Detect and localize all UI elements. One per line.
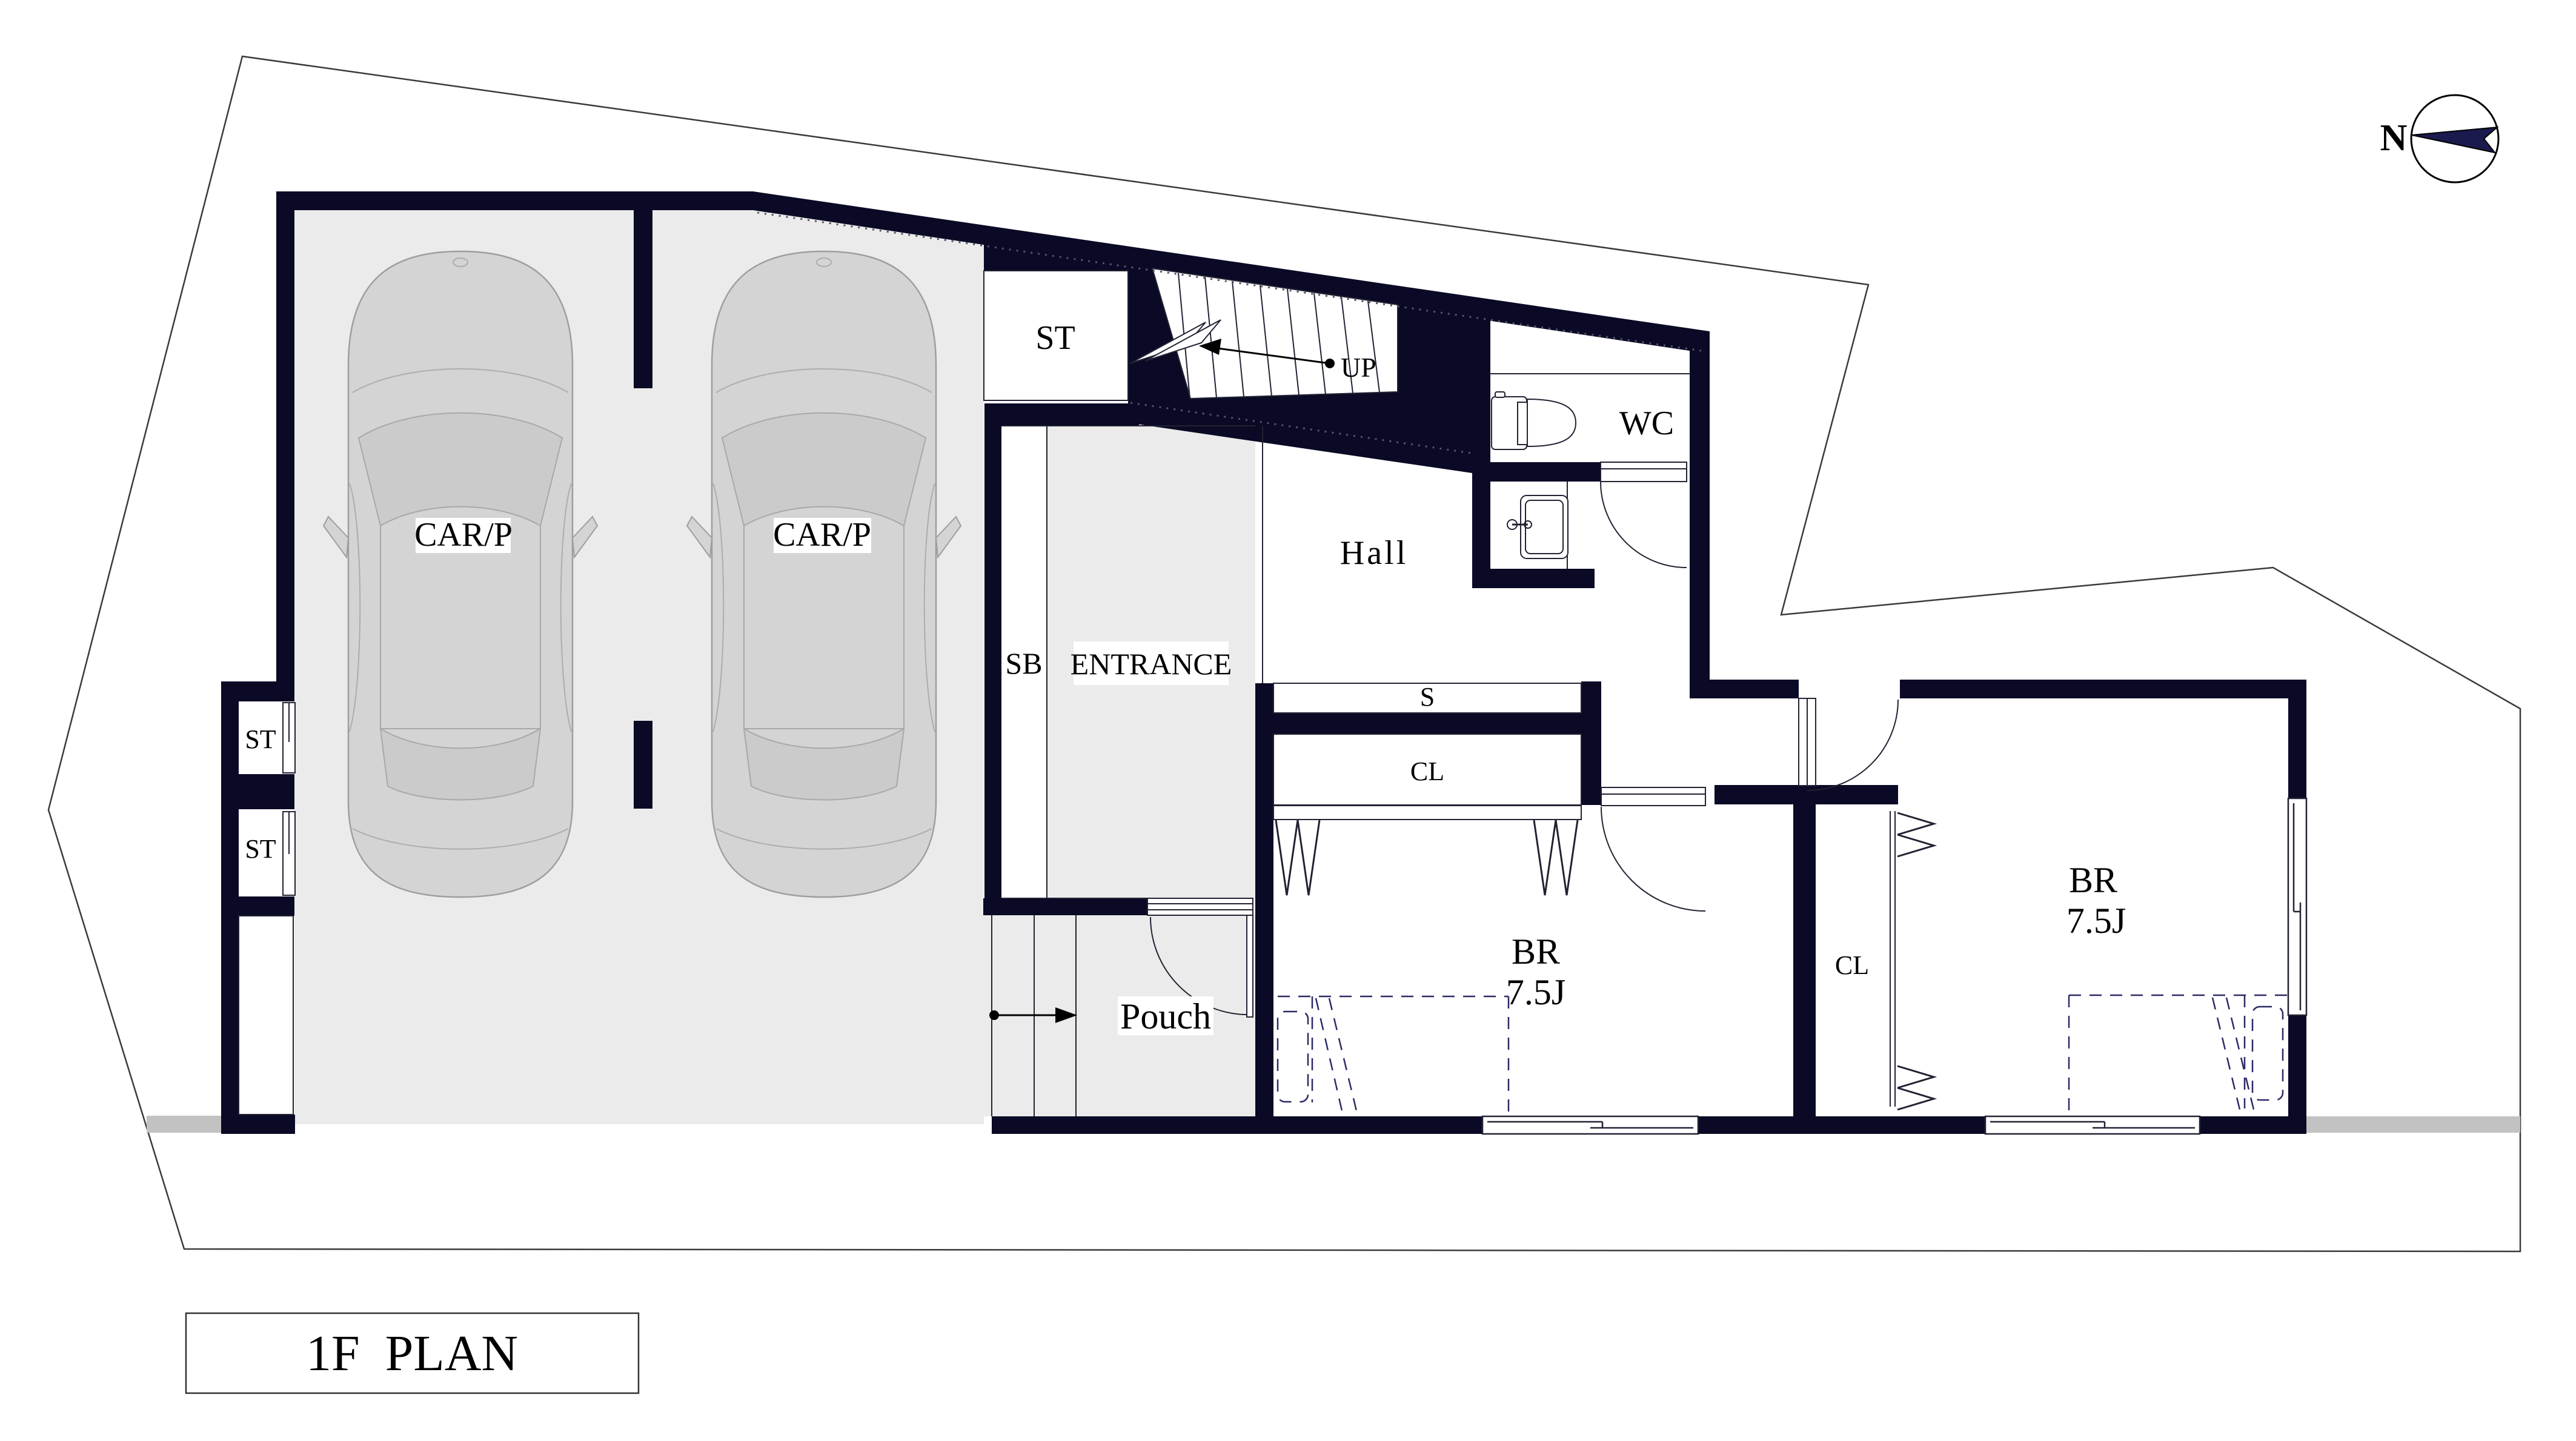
svg-text:S: S bbox=[1420, 682, 1435, 712]
svg-text:1F PLAN: 1F PLAN bbox=[306, 1325, 518, 1382]
svg-text:UP: UP bbox=[1341, 352, 1376, 383]
svg-text:BR: BR bbox=[2069, 860, 2117, 900]
svg-text:ENTRANCE: ENTRANCE bbox=[1071, 647, 1232, 681]
svg-text:CL: CL bbox=[1835, 950, 1869, 980]
svg-text:CAR/P: CAR/P bbox=[414, 516, 513, 554]
svg-text:BR: BR bbox=[1512, 932, 1560, 972]
svg-text:WC: WC bbox=[1619, 405, 1674, 442]
svg-text:Hall: Hall bbox=[1340, 534, 1408, 572]
svg-text:ST: ST bbox=[1035, 319, 1075, 357]
svg-text:7.5J: 7.5J bbox=[1506, 972, 1565, 1012]
svg-text:ST: ST bbox=[245, 724, 276, 754]
svg-text:CL: CL bbox=[1410, 757, 1444, 786]
svg-text:ST: ST bbox=[245, 834, 276, 864]
svg-text:7.5J: 7.5J bbox=[2066, 901, 2126, 941]
svg-text:N: N bbox=[2380, 118, 2408, 159]
svg-text:Pouch: Pouch bbox=[1120, 996, 1211, 1036]
svg-text:SB: SB bbox=[1005, 646, 1042, 680]
svg-text:CAR/P: CAR/P bbox=[773, 516, 871, 554]
